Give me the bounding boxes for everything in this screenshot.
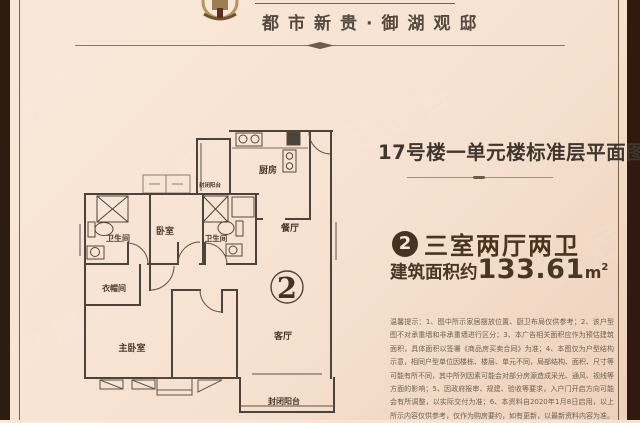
room-label-dining: 餐厅 <box>280 222 299 234</box>
unit-number-in-plan: 2 <box>277 271 297 305</box>
floorplan-drawing: 2 厨房 封闭阳台 卫生间 卧室 卫生间 餐厅 衣帽间 主卧室 客厅 封闭阳台 <box>0 0 640 420</box>
room-label-bedroom: 卧室 <box>156 225 174 237</box>
elevator-core <box>143 175 190 193</box>
room-label-kitchen: 厨房 <box>259 164 277 176</box>
room-label-living: 客厅 <box>273 330 292 342</box>
room-label-master-bedroom: 主卧室 <box>118 342 145 354</box>
listing-floorplan-image: { "header": { "title": "都市新贵·御湖观邸" }, "p… <box>0 0 640 420</box>
shaft-hatches <box>97 196 228 222</box>
room-label-balcony-top: 封闭阳台 <box>199 181 222 189</box>
room-label-cloakroom: 衣帽间 <box>102 283 126 293</box>
room-label-balcony-bottom: 封闭阳台 <box>268 396 300 406</box>
room-label-bath-mid: 卫生间 <box>205 233 228 243</box>
room-label-bath-left: 卫生间 <box>106 233 130 243</box>
room-labels: 厨房 封闭阳台 卫生间 卧室 卫生间 餐厅 衣帽间 主卧室 客厅 封闭阳台 <box>102 164 300 406</box>
